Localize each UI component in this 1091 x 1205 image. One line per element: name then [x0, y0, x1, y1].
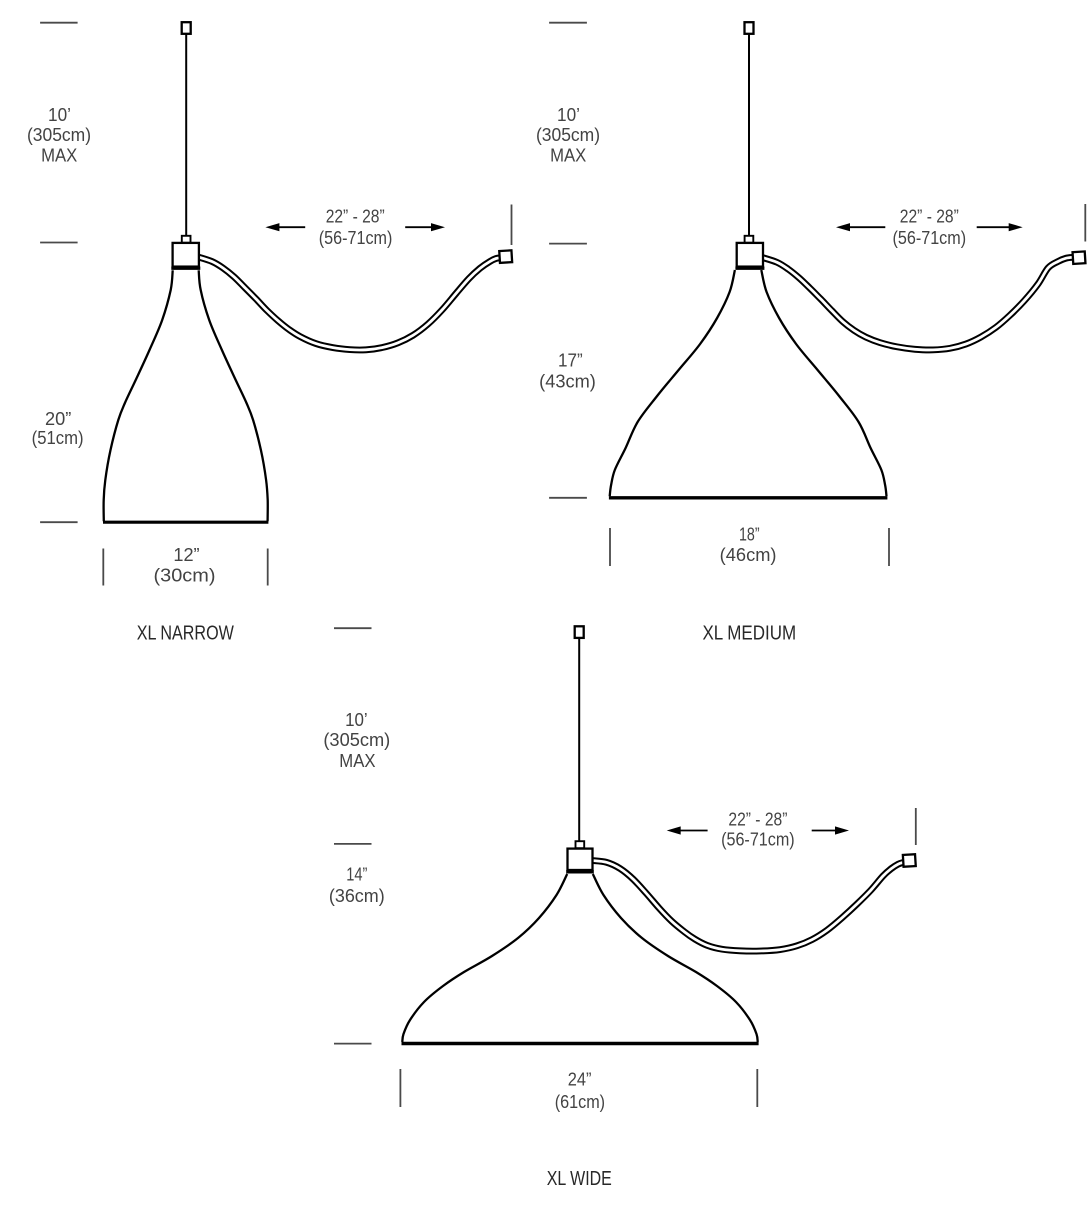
svg-text:MAX: MAX	[339, 751, 375, 771]
svg-text:22” - 28”: 22” - 28”	[900, 206, 959, 226]
svg-text:(43cm): (43cm)	[539, 371, 596, 391]
svg-text:24”: 24”	[568, 1070, 592, 1090]
svg-text:(56-71cm): (56-71cm)	[319, 228, 393, 248]
svg-text:(305cm): (305cm)	[27, 125, 91, 145]
svg-text:10’: 10’	[557, 105, 580, 125]
svg-text:(305cm): (305cm)	[536, 125, 600, 145]
svg-text:14”: 14”	[346, 865, 367, 885]
svg-text:(56-71cm): (56-71cm)	[721, 830, 795, 850]
svg-text:(56-71cm): (56-71cm)	[893, 228, 967, 248]
svg-text:20”: 20”	[45, 409, 71, 429]
svg-text:22” - 28”: 22” - 28”	[326, 206, 385, 226]
svg-text:10’: 10’	[48, 105, 71, 125]
svg-text:17”: 17”	[558, 350, 583, 370]
svg-text:XL WIDE: XL WIDE	[547, 1168, 612, 1190]
svg-text:(46cm): (46cm)	[720, 545, 777, 565]
svg-text:18”: 18”	[739, 525, 760, 545]
svg-text:12”: 12”	[173, 545, 199, 565]
svg-text:(61cm): (61cm)	[555, 1092, 605, 1112]
svg-text:XL MEDIUM: XL MEDIUM	[702, 622, 796, 644]
svg-text:XL NARROW: XL NARROW	[137, 623, 234, 645]
svg-text:22” - 28”: 22” - 28”	[728, 810, 787, 830]
svg-text:(51cm): (51cm)	[32, 428, 84, 448]
svg-text:MAX: MAX	[550, 145, 586, 165]
svg-text:(30cm): (30cm)	[154, 566, 216, 586]
svg-text:(305cm): (305cm)	[323, 730, 390, 750]
svg-text:(36cm): (36cm)	[329, 886, 385, 906]
svg-text:10’: 10’	[345, 710, 368, 730]
svg-text:MAX: MAX	[41, 145, 77, 165]
